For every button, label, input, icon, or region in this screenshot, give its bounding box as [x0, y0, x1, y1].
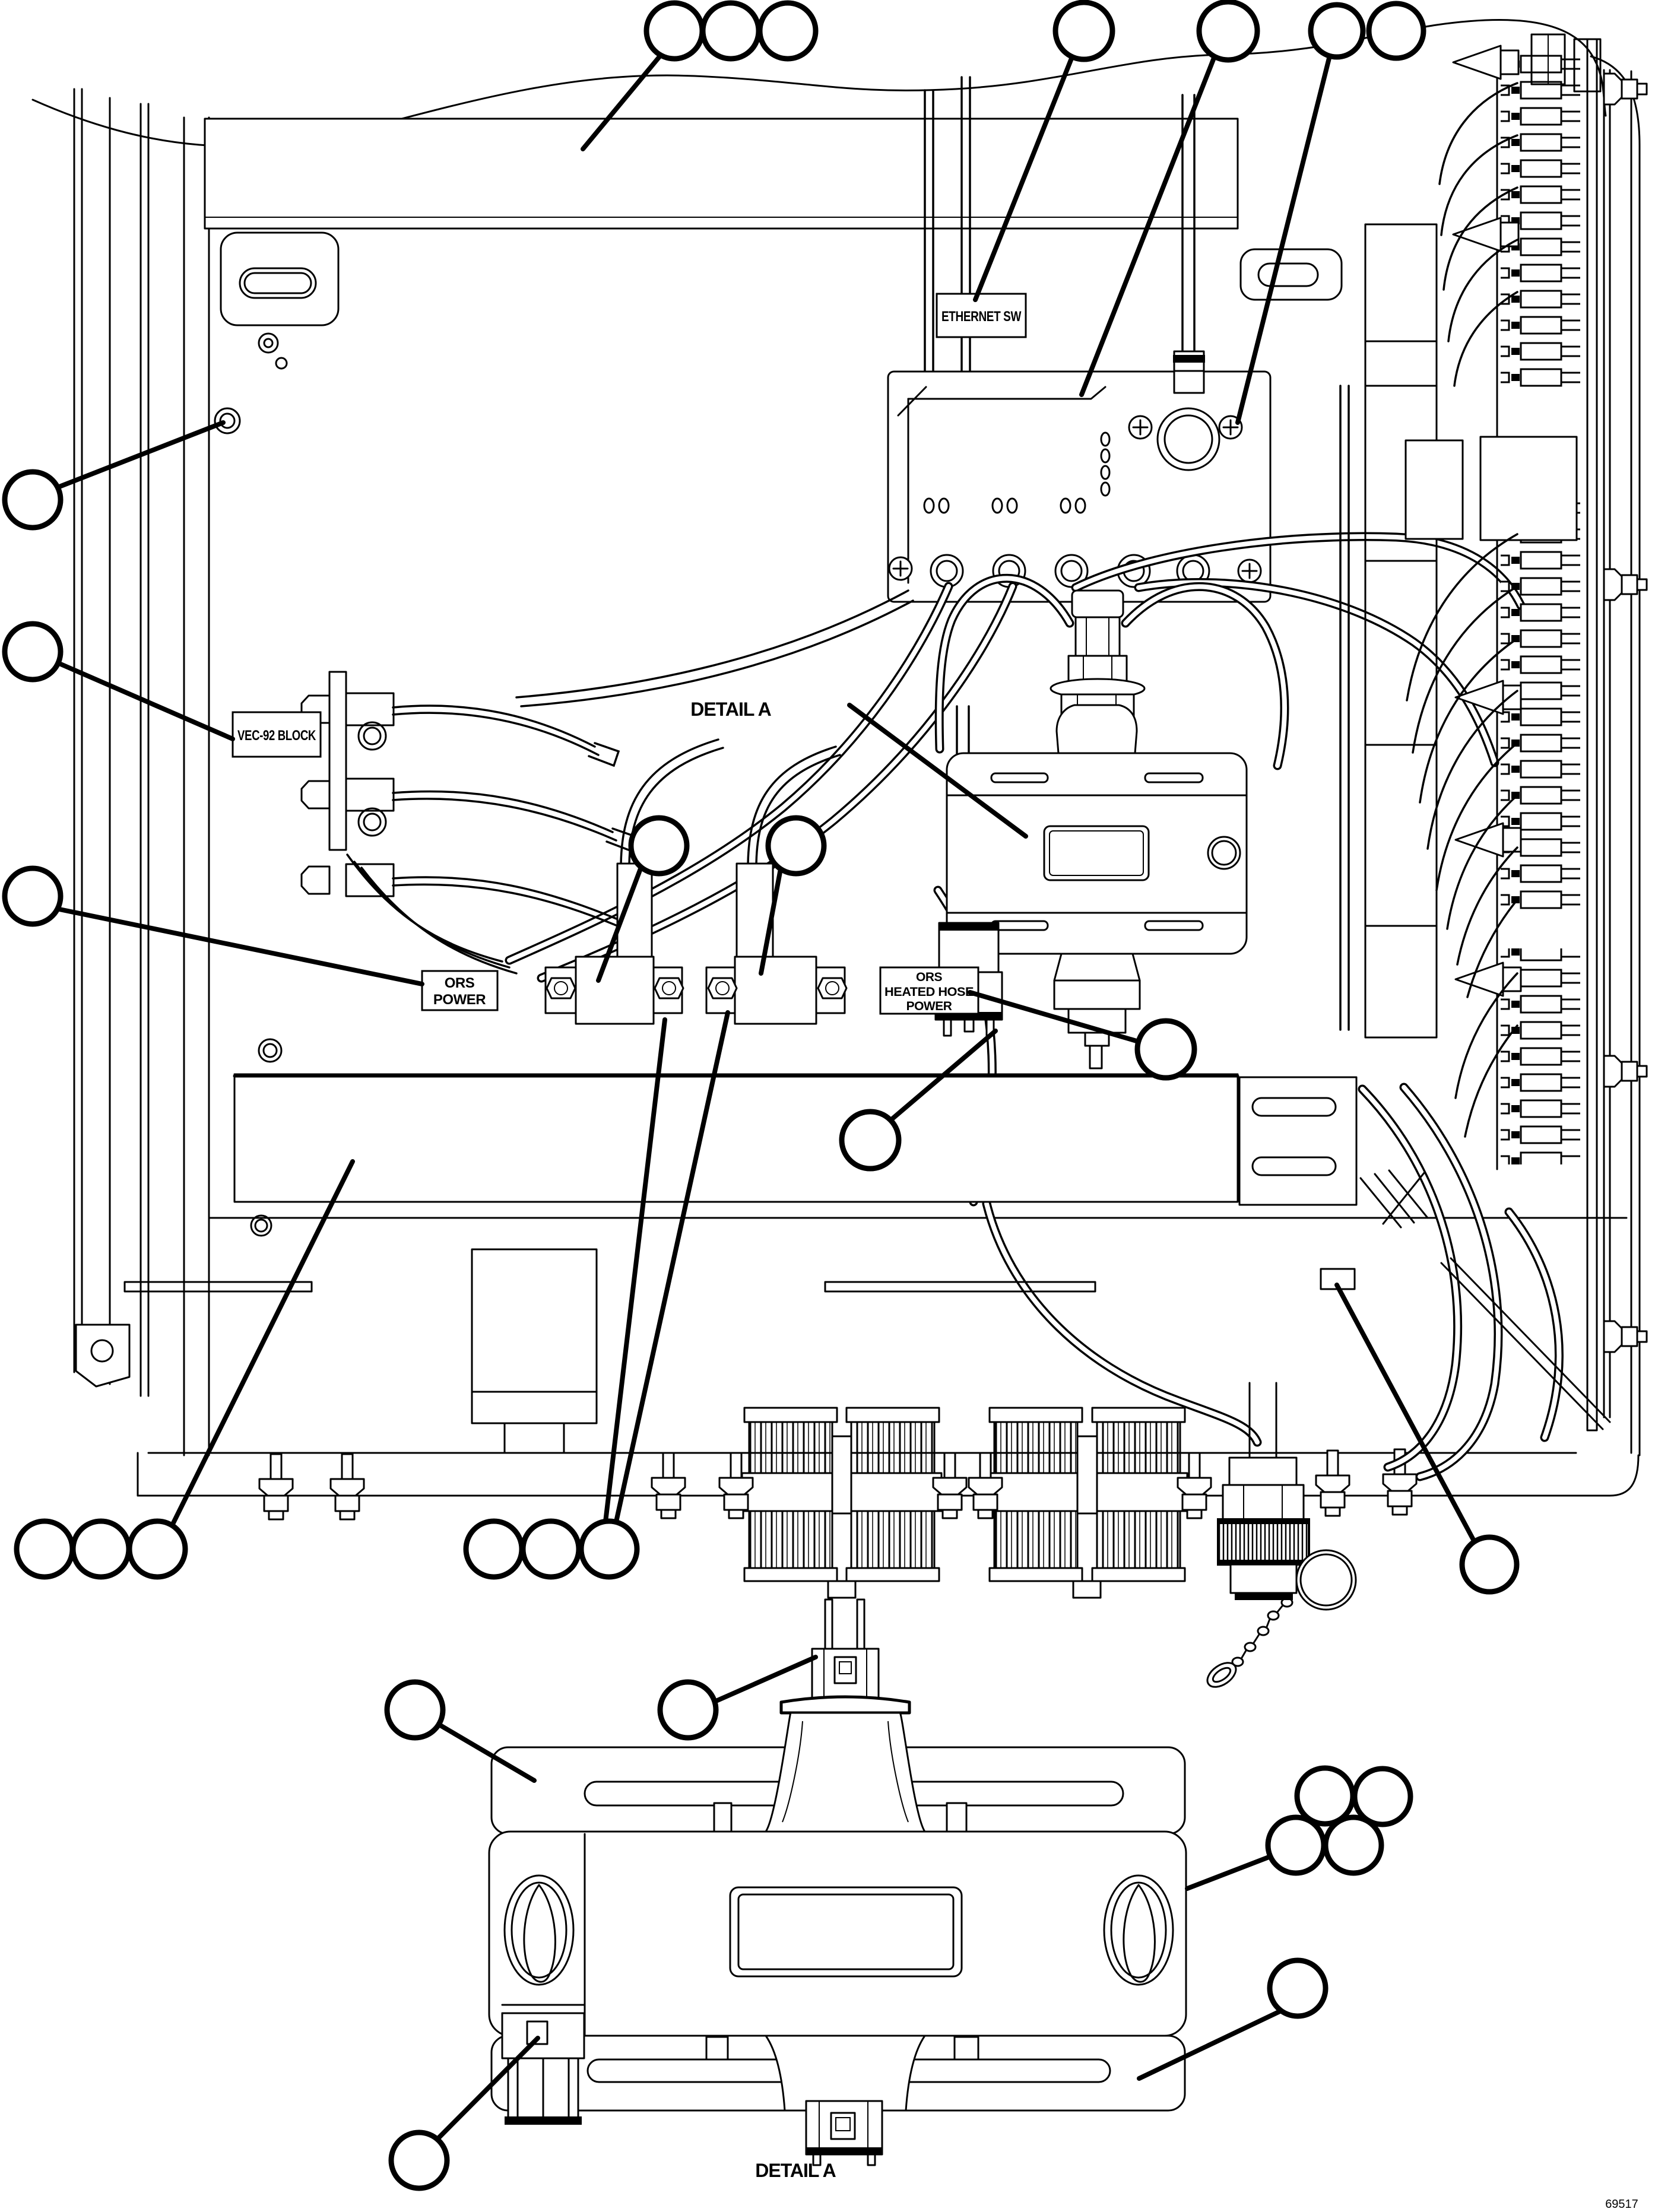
detail-tower — [766, 1713, 925, 1832]
screw-icon — [1129, 416, 1152, 439]
label-ors-power-line1: ORS — [445, 975, 475, 991]
ethernet-switch-module — [888, 351, 1270, 602]
label-vec92-text: VEC-92 BLOCK — [237, 728, 316, 744]
detail-a-caption: DETAIL A — [755, 2160, 836, 2181]
hex-bolt-icon — [1604, 74, 1647, 104]
ms-connector — [1203, 1383, 1356, 1692]
balloon-circle — [631, 818, 687, 874]
callout-leader — [59, 664, 233, 739]
balloon-circle — [5, 624, 61, 680]
balloon-circle — [581, 1521, 637, 1577]
callout-balloon — [703, 3, 759, 59]
balloon-circle — [523, 1521, 579, 1577]
top-raceway — [205, 119, 1238, 229]
detail-cap — [781, 1697, 909, 1713]
solenoid-valves — [546, 740, 846, 1024]
label-ors-power-line2: POWER — [433, 992, 486, 1008]
callout-balloon — [760, 3, 816, 59]
balloon-circle — [1326, 1817, 1381, 1873]
detail-view: DETAIL A — [489, 1600, 1186, 2181]
callout-balloon — [1187, 1817, 1324, 1889]
heatsink-blocks — [742, 1408, 1187, 1598]
balloon-circle — [660, 1682, 716, 1738]
heatsink-half — [1090, 1408, 1187, 1581]
label-ethernet-sw-text: ETHERNET SW — [941, 309, 1022, 325]
detail-top-connector — [812, 1649, 879, 1702]
callout-leader — [715, 1657, 816, 1702]
din-rails — [125, 1282, 1095, 1291]
detail-window — [730, 1887, 962, 1976]
balloon-circle — [129, 1521, 185, 1577]
cap-chain — [1203, 1598, 1292, 1692]
balloon-circle — [466, 1521, 522, 1577]
balloon-circle — [387, 1682, 443, 1738]
dust-cap — [1296, 1550, 1356, 1610]
lower-raceway — [234, 1074, 1238, 1202]
callout-balloon — [387, 1682, 534, 1781]
callout-balloon — [466, 1521, 522, 1577]
callout-balloon — [523, 1521, 579, 1577]
label-hh-line3: POWER — [906, 999, 952, 1013]
ors-bracket-assembly — [936, 578, 1285, 1068]
bar-end-bracket — [1239, 1077, 1356, 1289]
bracket-window — [1044, 826, 1149, 880]
screw-icon — [1238, 560, 1261, 582]
vec92-terminal-block — [302, 591, 913, 973]
diagram-page: ETHERNET SW VEC-92 BLOCK ORS POWER ORS H… — [0, 0, 1655, 2212]
lug — [302, 779, 394, 836]
label-heated-hose-power: ORS HEATED HOSE POWER — [880, 967, 978, 1014]
callout-balloon — [17, 1521, 72, 1577]
balloon-circle — [1311, 5, 1363, 57]
mounting-bracket-top-left — [221, 233, 338, 369]
callout-balloon — [5, 624, 233, 739]
label-ors-power: ORS POWER — [422, 971, 497, 1010]
detail-bottom-connector — [806, 2101, 882, 2165]
balloon-circle — [73, 1521, 129, 1577]
label-vec92-block: VEC-92 BLOCK — [233, 712, 321, 757]
detail-a-annotation-text: DETAIL A — [690, 699, 771, 720]
balloon-circle — [17, 1521, 72, 1577]
balloon-circle — [646, 3, 702, 59]
balloon-circle — [1462, 1537, 1517, 1592]
label-ethernet-sw: ETHERNET SW — [937, 294, 1026, 337]
screw-icon — [889, 557, 912, 580]
balloon-circle — [391, 2132, 447, 2188]
balloon-circle — [1355, 1769, 1410, 1824]
diagram-canvas: ETHERNET SW VEC-92 BLOCK ORS POWER ORS H… — [0, 0, 1655, 2212]
balloon-circle — [1270, 1960, 1326, 2016]
callout-balloon — [1355, 1769, 1410, 1824]
callout-leader — [1187, 1856, 1270, 1889]
callout-balloon — [129, 1161, 353, 1577]
callout-leader — [59, 909, 422, 984]
balloon-circle — [5, 868, 61, 924]
main-view: ETHERNET SW VEC-92 BLOCK ORS POWER ORS H… — [33, 20, 1647, 1692]
callout-balloon — [1326, 1817, 1381, 1873]
balloon-circle — [1369, 4, 1423, 58]
balloon-circle — [1199, 2, 1257, 60]
heatsink-half — [987, 1408, 1085, 1581]
callout-balloon — [1369, 4, 1423, 58]
callout-balloon — [73, 1521, 129, 1577]
label-hh-line1: ORS — [916, 970, 943, 984]
balloon-circle — [760, 3, 816, 59]
balloon-circle — [703, 3, 759, 59]
heatsink-half — [742, 1408, 839, 1581]
callout-balloon — [5, 423, 223, 528]
balloon-circle — [5, 472, 61, 528]
callout-leader — [1238, 56, 1330, 423]
callout-balloon — [1238, 5, 1363, 423]
balloon-circle — [768, 818, 824, 874]
balloon-circle — [1055, 2, 1112, 59]
callout-balloon — [1297, 1768, 1353, 1824]
detail-tower-bottom — [766, 2036, 925, 2111]
label-hh-line2: HEATED HOSE — [884, 985, 974, 999]
bracket-obround-right — [1241, 249, 1342, 300]
balloon-circle — [1297, 1768, 1353, 1824]
balloon-circle — [1137, 1021, 1194, 1078]
balloon-circle — [842, 1112, 899, 1169]
heatsink-half — [844, 1408, 941, 1581]
balloon-circle — [1268, 1817, 1324, 1873]
left-bottom-block — [472, 1249, 597, 1453]
page-code: 69517 — [1605, 2198, 1638, 2211]
